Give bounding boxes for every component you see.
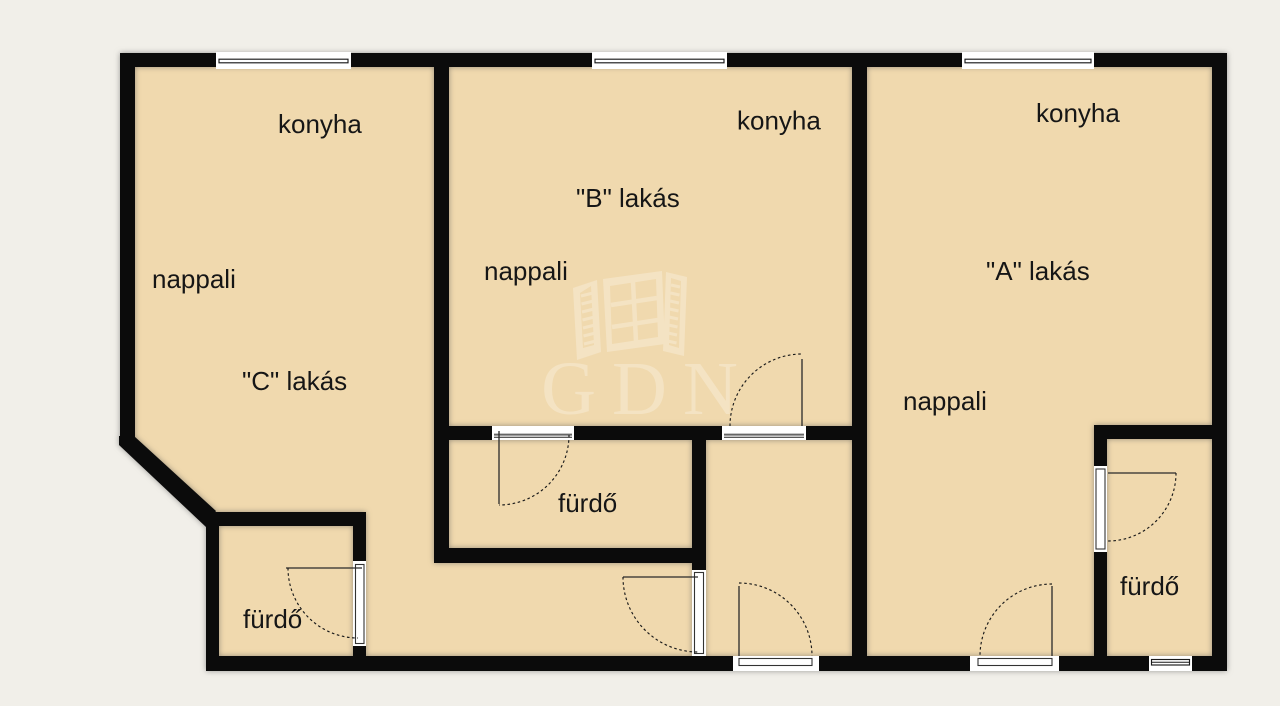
svg-text:"C" lakás: "C" lakás [242, 366, 347, 396]
svg-text:"A" lakás: "A" lakás [986, 256, 1090, 286]
svg-text:konyha: konyha [278, 109, 362, 139]
svg-text:konyha: konyha [737, 106, 821, 136]
svg-text:nappali: nappali [484, 256, 568, 286]
svg-text:fürdő: fürdő [558, 488, 617, 518]
svg-text:fürdő: fürdő [243, 604, 302, 634]
svg-text:GDN: GDN [541, 347, 754, 431]
svg-text:konyha: konyha [1036, 98, 1120, 128]
svg-text:fürdő: fürdő [1120, 571, 1179, 601]
svg-text:"B" lakás: "B" lakás [576, 183, 680, 213]
svg-text:nappali: nappali [903, 386, 987, 416]
svg-text:nappali: nappali [152, 264, 236, 294]
